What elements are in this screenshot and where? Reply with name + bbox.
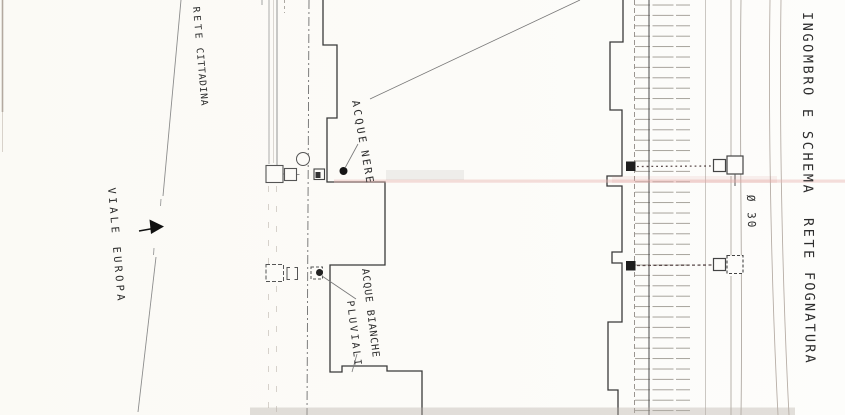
label-pluviali: PLUVIALI: [344, 300, 363, 368]
manhole-row-acque-bianche: [266, 265, 323, 282]
manhole-symbol: [727, 156, 743, 174]
manhole-symbol: [727, 256, 743, 274]
label-viale: VIALE: [105, 187, 121, 236]
left-roadside-lines: [262, 0, 285, 412]
label-rete: RETE: [190, 6, 204, 42]
label-europa: EUROPA: [110, 246, 127, 304]
label-acque-nere-1: ACQUE: [349, 99, 369, 146]
manhole-symbol: [297, 153, 310, 166]
acque-nere-inlet: [626, 162, 636, 172]
acque-nere-leader-lines: [345, 0, 580, 168]
title-word-fognatura: FOGNATURA: [801, 272, 818, 365]
drawing-title-vertical: INGOMBRO E SCHEMA RETE FOGNATURA: [799, 12, 818, 365]
label-acque-bianche: ACQUE BIANCHE: [359, 268, 381, 359]
title-word-ingombro: INGOMBRO: [799, 12, 816, 98]
right-building-outline: [607, 0, 623, 415]
right-building: [607, 0, 706, 415]
sewer-dashdot-line: [307, 0, 309, 415]
acque-bianche-inlet: [626, 261, 636, 271]
manhole-symbol: [287, 268, 290, 280]
building-hatch: [634, 0, 706, 415]
manhole-symbol: [285, 169, 297, 181]
title-word-schema: SCHEMA: [799, 131, 816, 196]
title-word-rete: RETE: [800, 218, 816, 261]
city-network-line: [138, 0, 181, 412]
manhole-symbol: [266, 265, 284, 282]
label-pipe-diameter: Ø 30: [744, 195, 758, 230]
acque-bianche-connection-dot: [316, 269, 323, 276]
right-road-lines: [731, 0, 789, 415]
manhole-symbol: [295, 268, 298, 280]
flow-direction-arrow: [139, 220, 164, 235]
acque-nere-connection-dot: [340, 167, 348, 175]
manhole-symbol: [714, 259, 726, 271]
manhole-symbol: [266, 166, 283, 183]
label-cittadina: CITTADINA: [194, 47, 210, 106]
title-word-e: E: [799, 109, 815, 120]
manhole-row-acque-nere: [266, 153, 348, 183]
manhole-symbol: [714, 160, 726, 172]
scanned-sewer-plan-page: RETE CITTADINA VIALE EUROPA ACQUE NERE A…: [0, 0, 845, 415]
